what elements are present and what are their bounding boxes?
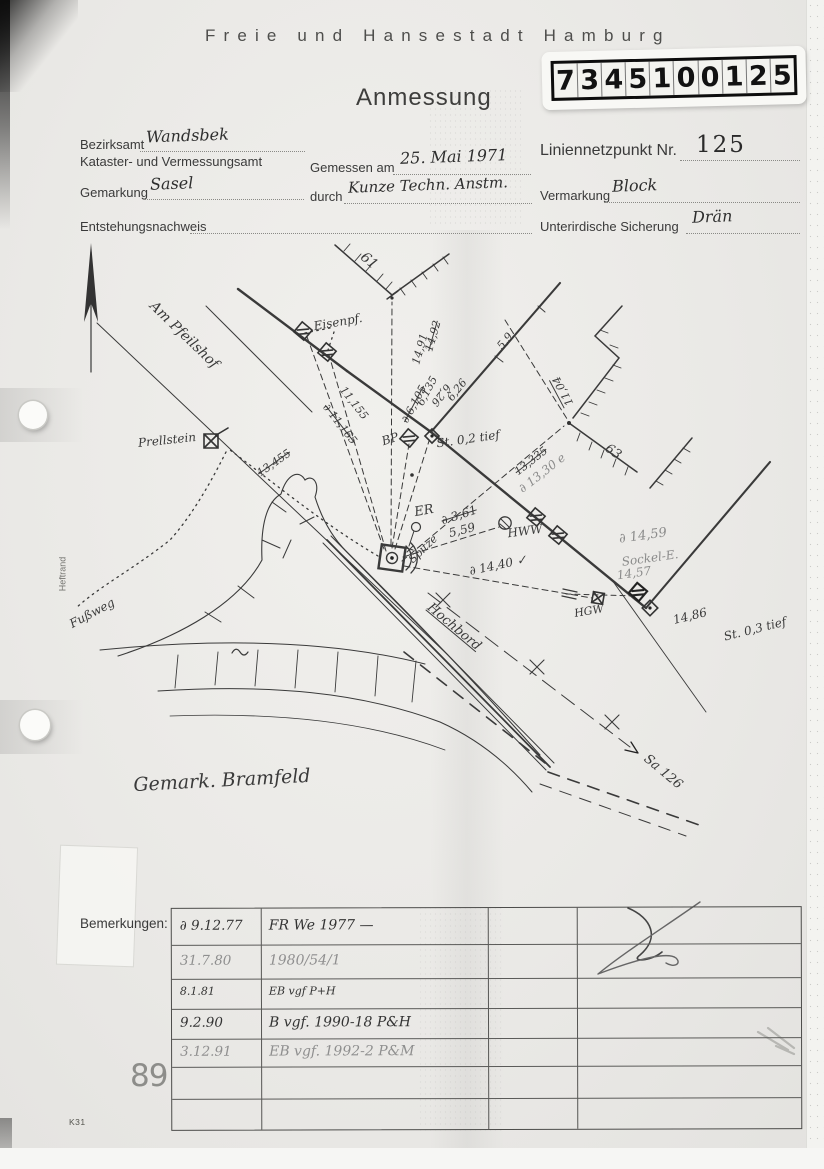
table-row-line	[172, 1065, 801, 1068]
remark-date: 31.7.80	[180, 953, 260, 969]
remarks-table: ∂ 9.12.77FR We 1977 —31.7.801980/54/18.1…	[171, 906, 803, 1131]
liniennetzpunkt-symbol	[378, 544, 405, 571]
remark-text: EB vgf P+H	[269, 984, 509, 998]
sketch-label: ER	[413, 503, 434, 519]
table-row-line	[172, 1037, 801, 1040]
sketch-label: Heftrand	[59, 557, 68, 592]
remark-date: 3.12.91	[180, 1044, 260, 1060]
remarks-label: Bemerkungen:	[80, 916, 168, 931]
remark-text	[269, 1073, 509, 1074]
scanned-survey-sheet: Freie und Hansestadt Hamburg Anmessung 7…	[0, 0, 824, 1169]
page-number: 89	[130, 1058, 167, 1094]
form-code: K31	[69, 1117, 86, 1127]
remark-text: 1980/54/1	[269, 952, 509, 969]
remark-text: EB vgf. 1992-2 P&M	[269, 1043, 509, 1060]
remark-date: 8.1.81	[180, 985, 260, 998]
table-row-line	[172, 1007, 801, 1010]
table-row-line	[172, 943, 801, 946]
table-divider	[577, 908, 579, 1129]
remark-text: B vgf. 1990-18 P&H	[269, 1014, 509, 1031]
table-divider	[261, 909, 263, 1130]
remark-text	[269, 1104, 509, 1105]
er-symbol	[412, 523, 421, 532]
remark-date: 9.2.90	[180, 1015, 260, 1031]
table-row-line	[172, 1097, 801, 1100]
remark-text: FR We 1977 —	[269, 917, 509, 934]
table-row-line	[172, 977, 801, 980]
remark-date: ∂ 9.12.77	[180, 918, 260, 934]
